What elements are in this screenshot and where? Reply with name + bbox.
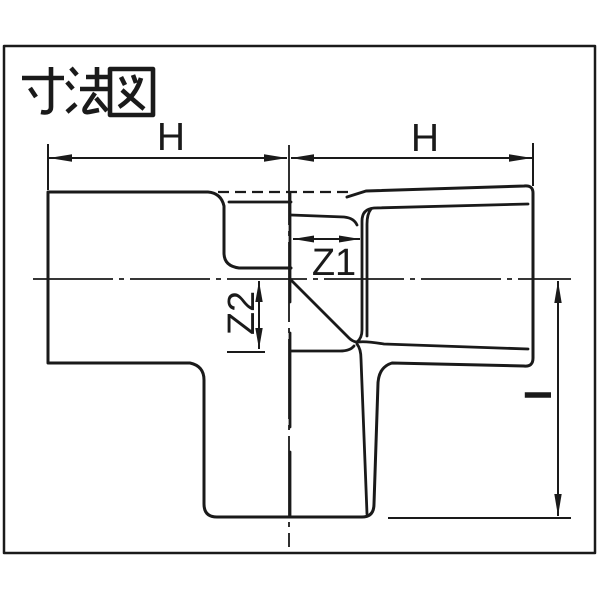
junction-diagonal-line [290,279,356,342]
dim-label-h-left: H [157,116,185,159]
dim-label-z1: Z1 [312,242,356,284]
branch-stop-shoulder [291,346,354,351]
right-socket-bore-top [357,204,528,342]
right-socket-mouth-line [367,209,371,336]
extension-lines [48,143,571,518]
right-socket-stop-shoulder [291,215,357,225]
title-kanji-art [22,67,153,115]
dim-label-z2: Z2 [221,291,263,335]
right-socket-bore-bottom [358,342,528,349]
dimension-drawing-page: 寸法図 [0,0,600,600]
drawing-border [4,46,595,553]
branch-inner-wall [357,344,367,514]
dim-label-h-right: H [411,117,439,160]
dim-label-i: I [518,390,560,401]
dimension-arrowheads [49,154,562,516]
tee-fitting-dimension-drawing: H H Z1 Z2 I [0,0,600,600]
dimension-lines [49,158,558,516]
